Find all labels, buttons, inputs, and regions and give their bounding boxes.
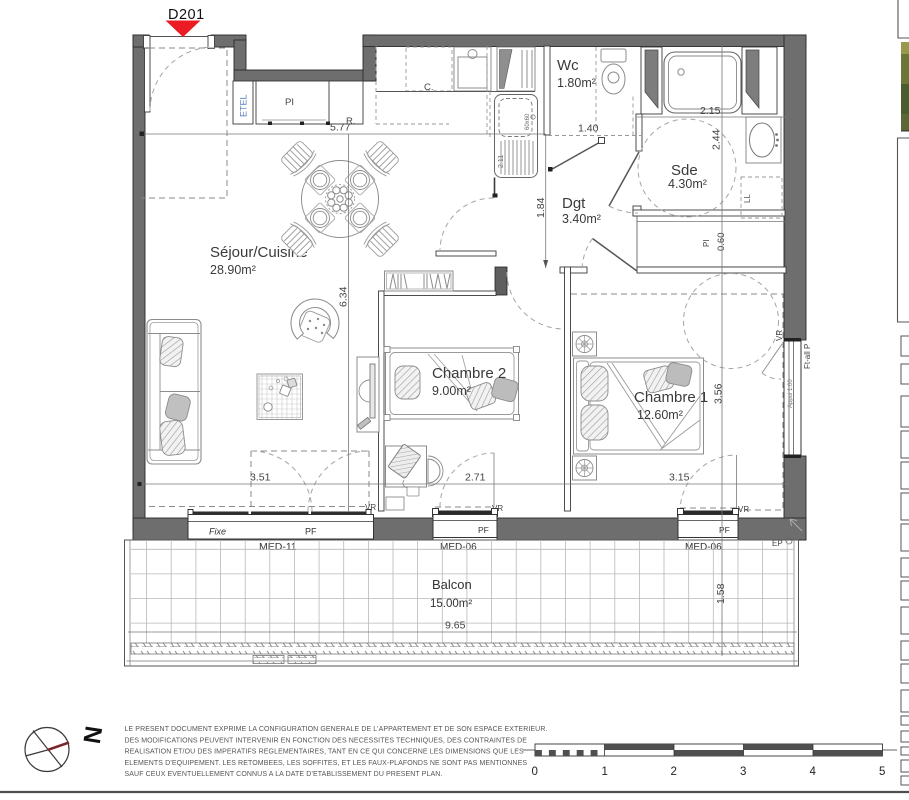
svg-text:3.51: 3.51 [250, 472, 271, 484]
svg-text:2.44: 2.44 [711, 129, 723, 150]
svg-text:28.90m²: 28.90m² [210, 263, 256, 277]
svg-text:Wc: Wc [557, 57, 579, 74]
svg-text:3.40m²: 3.40m² [562, 212, 601, 226]
svg-text:3.56: 3.56 [713, 383, 725, 404]
svg-text:2.11: 2.11 [498, 155, 505, 168]
svg-text:4.30m²: 4.30m² [668, 177, 707, 191]
svg-text:REALISATION ET/OU DES IMPERATI: REALISATION ET/OU DES IMPERATIFS REGLEME… [125, 749, 524, 756]
svg-text:Appui 1.00: Appui 1.00 [788, 379, 794, 408]
svg-text:2.71: 2.71 [465, 472, 486, 484]
svg-text:60x60: 60x60 [525, 113, 531, 130]
svg-text:0.60: 0.60 [716, 233, 727, 252]
svg-text:PF: PF [478, 525, 489, 535]
svg-text:MED-11: MED-11 [259, 541, 297, 553]
svg-text:15.00m²: 15.00m² [430, 598, 472, 610]
svg-text:MED-06: MED-06 [685, 542, 722, 553]
svg-text:VR: VR [738, 505, 749, 514]
svg-text:Balcon: Balcon [432, 577, 472, 592]
svg-text:LL: LL [743, 194, 752, 203]
svg-text:4: 4 [810, 766, 817, 778]
svg-text:1.80m²: 1.80m² [557, 76, 596, 90]
svg-text:9.65: 9.65 [445, 620, 466, 632]
svg-text:2.15: 2.15 [700, 105, 721, 117]
svg-text:5: 5 [879, 766, 885, 778]
svg-text:Chambre 2: Chambre 2 [432, 365, 506, 382]
svg-text:3.15: 3.15 [669, 472, 690, 484]
svg-text:1.58: 1.58 [715, 583, 727, 604]
svg-text:D201: D201 [168, 7, 205, 23]
svg-text:ETEL: ETEL [239, 94, 249, 117]
svg-text:2: 2 [671, 766, 677, 778]
svg-text:5.77: 5.77 [330, 122, 351, 134]
svg-text:VR: VR [775, 330, 784, 341]
svg-text:SAUF CEUX EVENTUELLEMENT CONNU: SAUF CEUX EVENTUELLEMENT CONNUS A LA DAT… [125, 771, 443, 778]
svg-text:0: 0 [532, 766, 538, 778]
svg-text:ELEMENTS D’EQUIPEMENT. LES RET: ELEMENTS D’EQUIPEMENT. LES RETOMBEES, LE… [125, 760, 528, 767]
svg-text:1.84: 1.84 [535, 197, 547, 218]
svg-text:Ft-all P: Ft-all P [803, 344, 812, 369]
svg-text:Chambre 1: Chambre 1 [634, 389, 708, 406]
svg-text:3: 3 [740, 766, 746, 778]
svg-text:6.34: 6.34 [338, 286, 350, 307]
svg-text:12.60m²: 12.60m² [637, 408, 683, 422]
svg-text:PF: PF [719, 525, 730, 535]
svg-text:Fixe: Fixe [209, 527, 226, 537]
svg-text:PI: PI [285, 97, 294, 108]
svg-text:LE PRESENT DOCUMENT EXPRIME LA: LE PRESENT DOCUMENT EXPRIME LA CONFIGURA… [125, 726, 548, 733]
svg-text:PI: PI [702, 239, 711, 247]
svg-text:MED-06: MED-06 [440, 542, 477, 553]
svg-text:PF: PF [305, 527, 317, 537]
svg-text:Dgt: Dgt [562, 195, 586, 212]
svg-text:DES MODIFICATIONS PEUVENT INTE: DES MODIFICATIONS PEUVENT INTERVENIR EN … [125, 737, 528, 744]
svg-text:9.00m²: 9.00m² [432, 384, 471, 398]
svg-text:1.40: 1.40 [578, 123, 599, 135]
svg-text:1: 1 [602, 766, 608, 778]
